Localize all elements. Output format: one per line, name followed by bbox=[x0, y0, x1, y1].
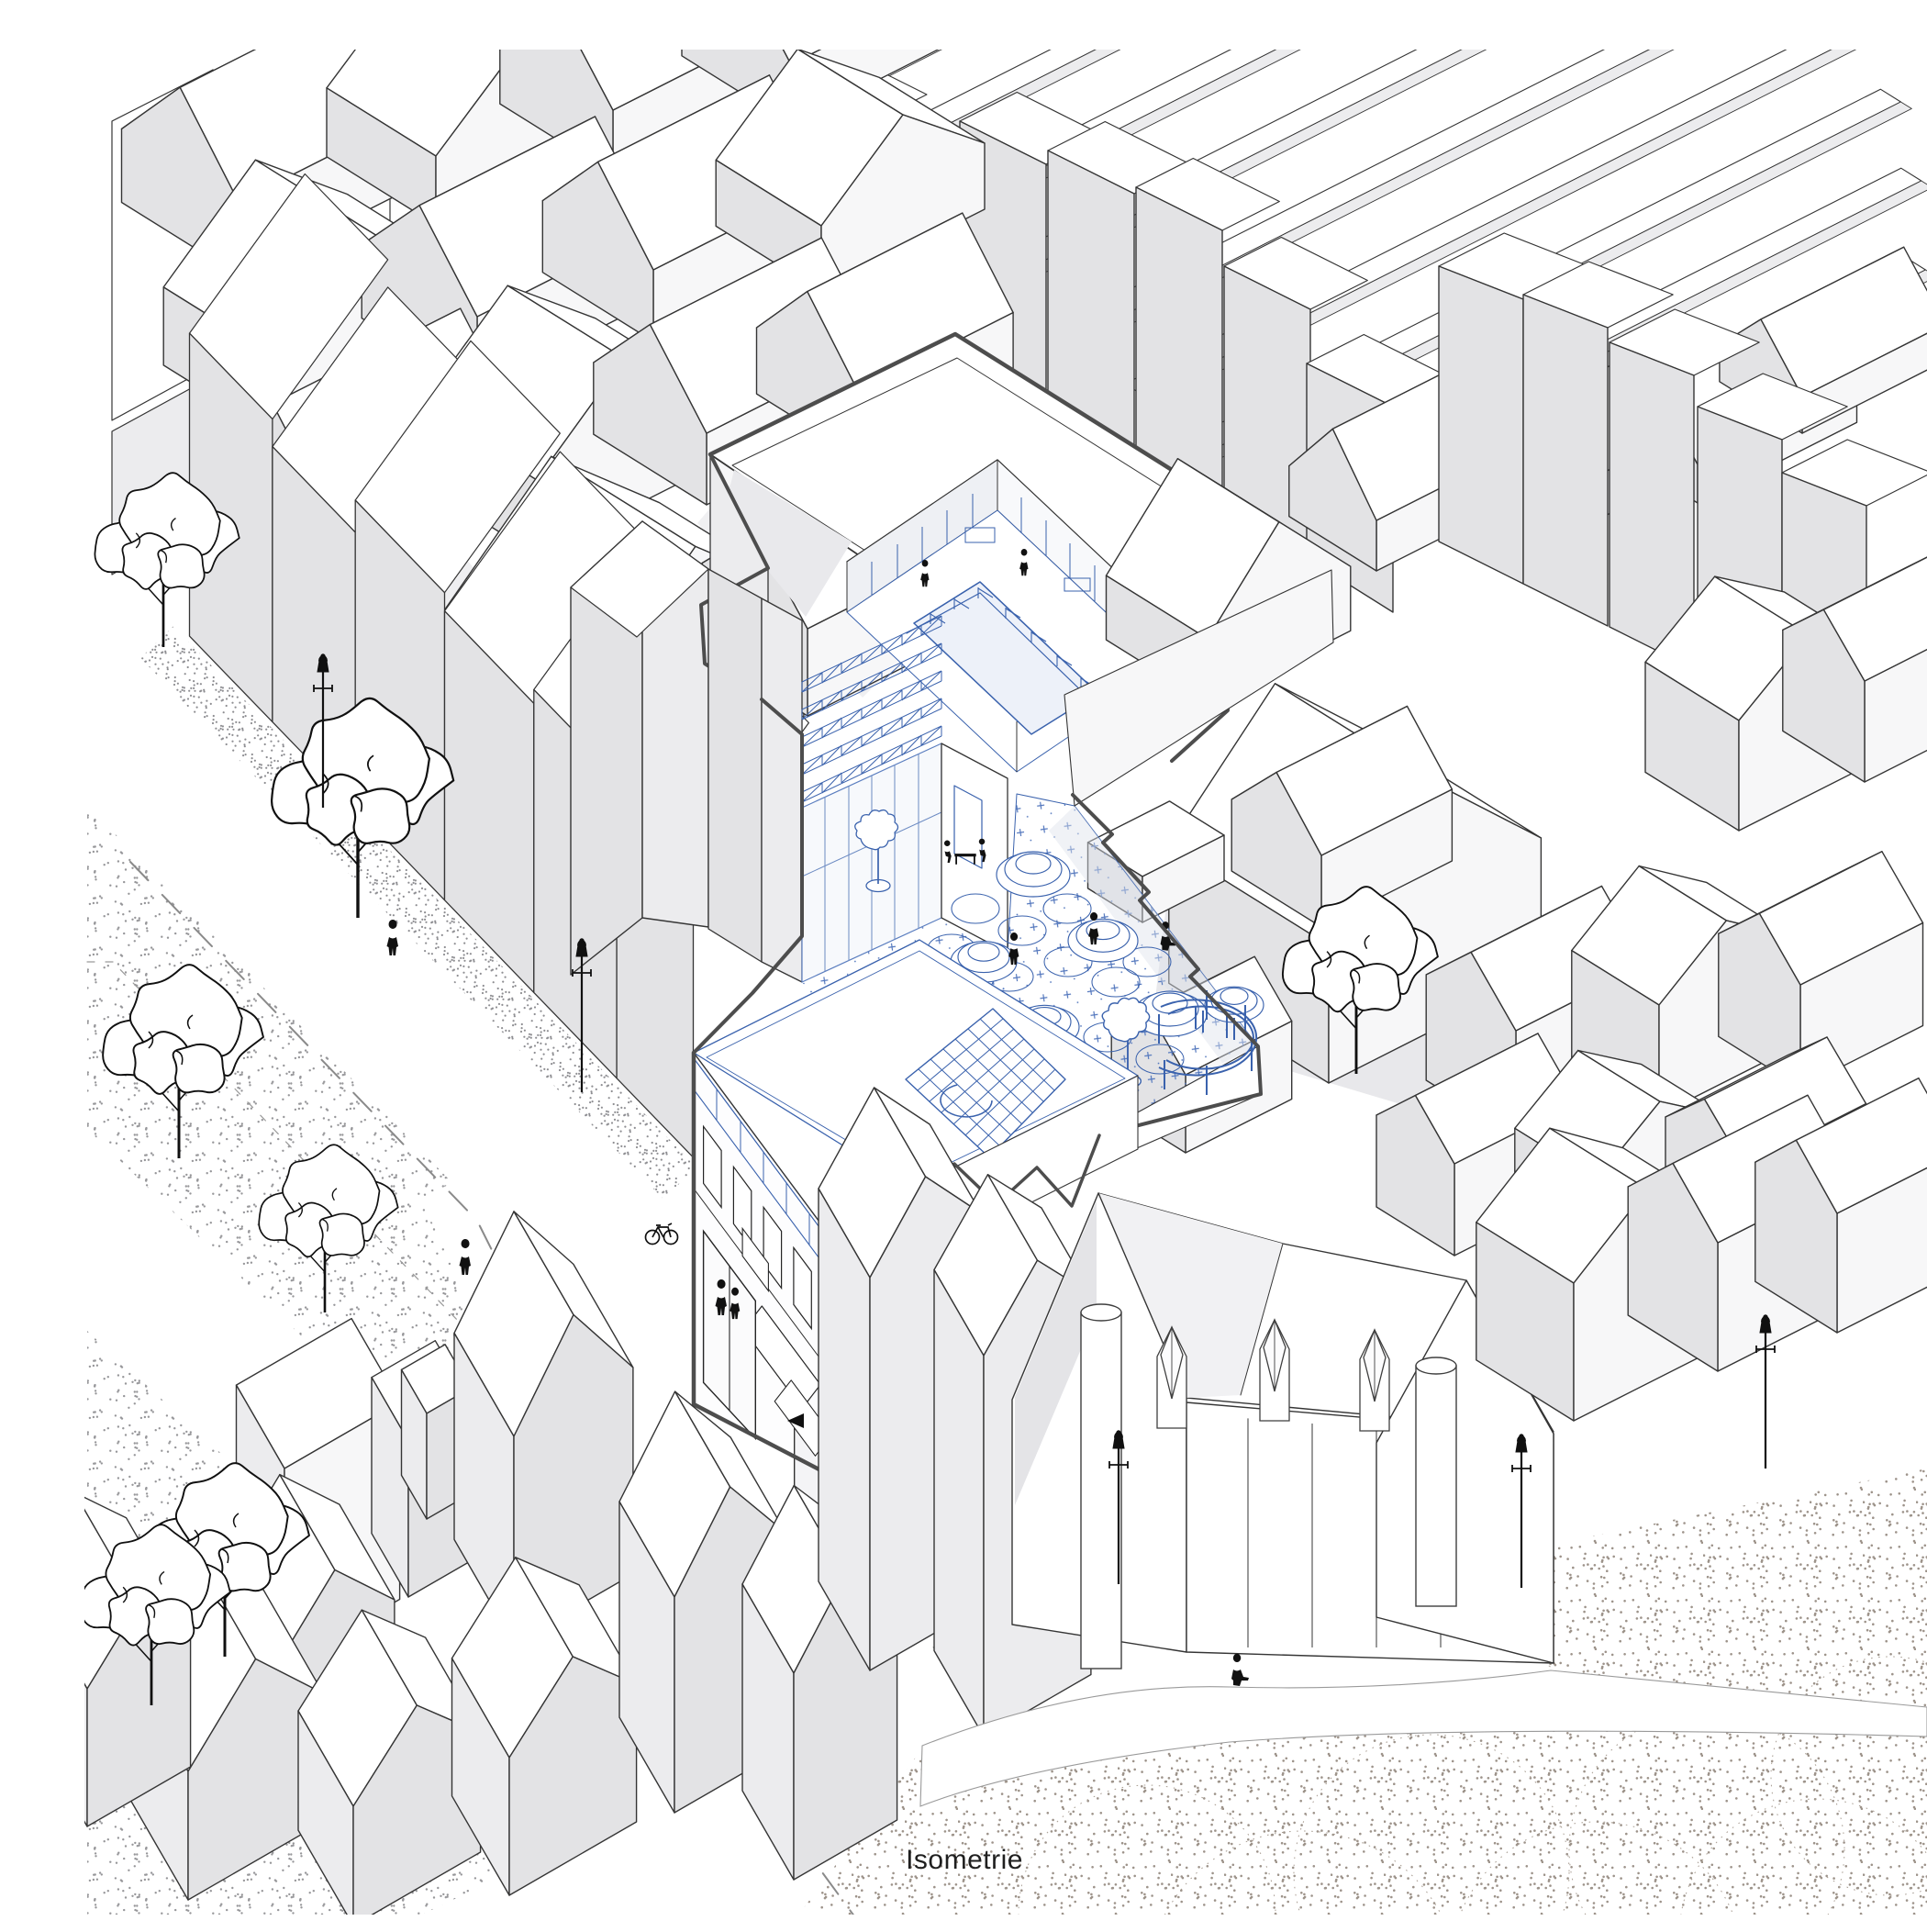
svg-text:Isometrie: Isometrie bbox=[906, 1845, 1023, 1875]
